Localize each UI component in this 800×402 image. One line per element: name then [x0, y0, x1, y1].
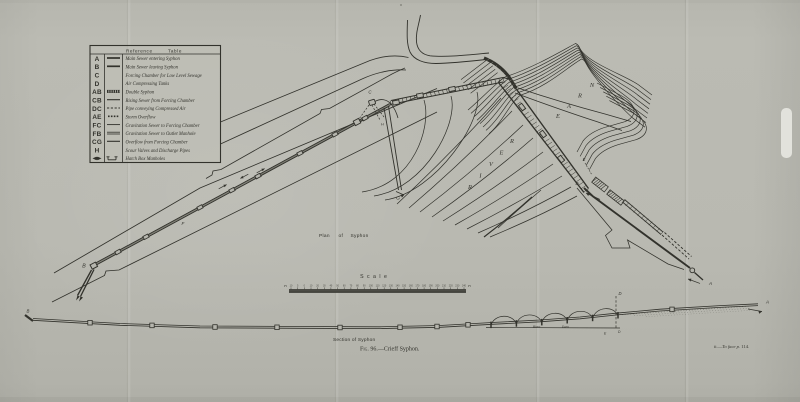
svg-text:D: D [575, 181, 578, 186]
svg-text:210: 210 [442, 285, 447, 288]
svg-text:230: 230 [455, 285, 460, 288]
svg-text:AE: AE [92, 114, 102, 121]
svg-text:R: R [577, 93, 582, 100]
svg-text:Double Syphon: Double Syphon [125, 91, 155, 96]
svg-text:FB: FB [93, 131, 102, 138]
svg-text:Table: Table [168, 48, 182, 53]
svg-text:Plan: Plan [319, 233, 330, 239]
svg-text:160: 160 [409, 285, 414, 288]
svg-text:A: A [566, 103, 571, 110]
svg-text:FC: FC [93, 122, 102, 129]
svg-text:190: 190 [429, 285, 434, 288]
svg-text:Overflow from Forcing Chamber: Overflow from Forcing Chamber [126, 141, 188, 146]
svg-text:B: B [82, 264, 86, 270]
svg-text:Reference: Reference [126, 48, 153, 53]
svg-text:150: 150 [402, 285, 407, 288]
svg-text:E: E [583, 157, 586, 162]
svg-text:River: River [532, 324, 541, 328]
svg-text:CG: CG [92, 139, 102, 146]
svg-text:Scour Valves and Discharge Pip: Scour Valves and Discharge Pipes [126, 149, 191, 154]
svg-text:B: B [27, 309, 30, 314]
svg-text:Pipe conveying Compressed Air: Pipe conveying Compressed Air [125, 107, 186, 112]
svg-text:DC: DC [92, 106, 102, 113]
svg-text:200: 200 [435, 285, 440, 288]
svg-text:E: E [499, 150, 504, 157]
svg-text:Hatch Box Manholes: Hatch Box Manholes [125, 157, 166, 162]
svg-text:120: 120 [382, 285, 387, 288]
svg-text:240: 240 [462, 285, 467, 288]
svg-text:Main Sewer leaving Syphon: Main Sewer leaving Syphon [125, 66, 179, 71]
svg-text:A: A [708, 281, 712, 286]
svg-text:Section of Syphon: Section of Syphon [333, 337, 375, 343]
svg-text:A: A [765, 300, 769, 305]
svg-text:H: H [95, 147, 100, 154]
svg-text:ii.—To face p. 114.: ii.—To face p. 114. [714, 344, 749, 349]
svg-text:FIG. 96.—Crieff Syphon.: FIG. 96.—Crieff Syphon. [360, 346, 420, 353]
svg-text:CB: CB [92, 98, 102, 105]
svg-text:R: R [509, 138, 514, 145]
svg-text:N: N [589, 82, 595, 89]
svg-text:Gravitation Sewer to Forcing C: Gravitation Sewer to Forcing Chamber [126, 124, 200, 129]
svg-text:AB: AB [92, 89, 102, 96]
svg-text:Rising Sewer from Forcing Cham: Rising Sewer from Forcing Chamber [125, 99, 195, 104]
svg-text:130: 130 [389, 285, 394, 288]
svg-text:S c a l e: S c a l e [360, 274, 388, 280]
svg-text:Gravitation Sewer to Outlet Ma: Gravitation Sewer to Outlet Manhole [126, 132, 196, 137]
svg-text:220: 220 [449, 285, 454, 288]
svg-text:Earn: Earn [561, 324, 569, 328]
svg-text:R: R [467, 184, 472, 191]
svg-text:110: 110 [376, 285, 380, 288]
svg-text:Forcing Chamber for Low Level: Forcing Chamber for Low Level Sewage [125, 74, 202, 79]
svg-text:B: B [95, 64, 100, 71]
svg-text:100: 100 [369, 285, 374, 288]
svg-text:170: 170 [415, 285, 420, 288]
svg-text:C: C [95, 73, 100, 80]
svg-text:Storm Overflow: Storm Overflow [126, 116, 157, 121]
svg-text:Air Compressing Tanks: Air Compressing Tanks [125, 82, 170, 87]
svg-text:Syphon: Syphon [351, 233, 369, 239]
svg-text:A: A [95, 56, 100, 63]
svg-text:H: H [381, 123, 384, 127]
svg-text:D: D [619, 291, 622, 296]
svg-text:180: 180 [422, 285, 427, 288]
svg-text:of: of [339, 233, 344, 239]
svg-text:140: 140 [396, 285, 401, 288]
svg-text:E: E [555, 113, 560, 120]
svg-text:D: D [95, 81, 100, 88]
svg-text:Main Sewer entering Syphon: Main Sewer entering Syphon [125, 57, 181, 62]
